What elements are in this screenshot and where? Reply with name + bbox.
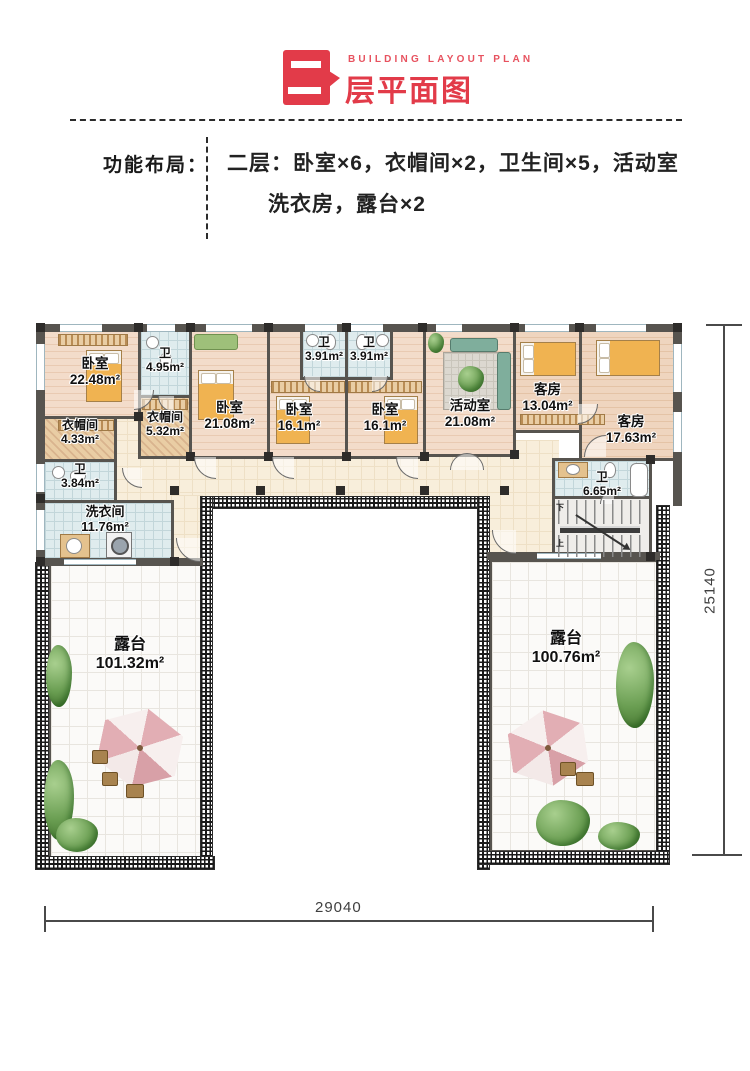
- room-label: 卧室16.1m²: [262, 402, 336, 434]
- floor-two-badge-icon: [283, 50, 330, 105]
- column: [575, 323, 584, 332]
- dimension-tick: [44, 906, 46, 932]
- chair-icon: [126, 784, 144, 798]
- badge-bar: [291, 61, 321, 68]
- shelf-icon: [58, 334, 128, 346]
- badge-bar: [288, 87, 321, 94]
- room-label: 卫3.91m²: [345, 335, 393, 363]
- window: [60, 324, 102, 332]
- floor-plan-page: BUILDING LAYOUT PLAN 层平面图 功能布局： 二层：卧室×6，…: [0, 0, 750, 1071]
- dimension-width-label: 29040: [315, 899, 362, 916]
- room-label: 卫4.95m²: [140, 346, 190, 374]
- summary-line1: 二层：卧室×6，衣帽间×2，卫生间×5，活动室: [227, 147, 679, 177]
- stairs-up-label: 上: [556, 538, 564, 549]
- room-label: 洗衣间11.76m²: [48, 504, 162, 535]
- window: [36, 344, 45, 390]
- window: [673, 344, 682, 392]
- column: [264, 323, 273, 332]
- courtyard-void: [213, 509, 477, 870]
- room-label: 卧室16.1m²: [348, 402, 422, 434]
- room-label: 卫3.84m²: [44, 462, 116, 490]
- column: [673, 323, 682, 332]
- column: [510, 450, 519, 459]
- window: [206, 324, 252, 332]
- column: [342, 323, 351, 332]
- room-label: 卧室21.08m²: [189, 400, 270, 432]
- room-label: 卧室22.48m²: [50, 356, 140, 388]
- chair-icon: [102, 772, 118, 786]
- bed-icon: [596, 340, 660, 376]
- column: [36, 557, 45, 566]
- badge-tail: [329, 71, 340, 87]
- sofa-icon: [450, 338, 498, 352]
- room-label: 客房13.04m²: [513, 382, 582, 414]
- column: [186, 323, 195, 332]
- summary-label: 功能布局：: [103, 150, 208, 177]
- column: [420, 452, 429, 461]
- dimension-tick: [652, 906, 654, 932]
- column: [170, 486, 179, 495]
- column: [134, 323, 143, 332]
- column: [36, 323, 45, 332]
- dimension-width-line: [45, 920, 653, 922]
- window: [36, 510, 45, 550]
- room-label: 卫3.91m²: [300, 335, 348, 363]
- window: [64, 559, 136, 565]
- column: [256, 486, 265, 495]
- summary-line2: 洗衣房，露台×2: [268, 188, 426, 218]
- room-label: 卫6.65m²: [570, 470, 634, 498]
- room-label: 衣帽间4.33m²: [44, 418, 116, 446]
- washer-icon: [106, 532, 132, 558]
- window: [596, 324, 646, 332]
- chair-icon: [92, 750, 108, 764]
- column: [500, 486, 509, 495]
- column: [36, 494, 45, 503]
- column: [420, 486, 429, 495]
- window: [305, 324, 337, 332]
- railing: [477, 851, 670, 865]
- column: [646, 455, 655, 464]
- room-label: 客房17.63m²: [588, 414, 674, 446]
- terrace-right-label: 露台100.76m²: [496, 630, 636, 668]
- window: [147, 324, 175, 332]
- dimension-height-line: [723, 325, 725, 855]
- sink-icon: [66, 538, 82, 554]
- room-label: 活动室21.08m²: [426, 398, 514, 430]
- stairs-icon: [558, 500, 646, 524]
- terrace-left-label: 露台101.32m²: [60, 636, 200, 674]
- column: [170, 557, 179, 566]
- column: [510, 323, 519, 332]
- window: [351, 324, 383, 332]
- bed-icon: [520, 342, 576, 376]
- railing: [200, 496, 213, 870]
- dimension-tick: [692, 854, 742, 856]
- column: [646, 552, 655, 561]
- column: [418, 323, 427, 332]
- dashed-divider: [70, 119, 682, 121]
- railing: [35, 856, 215, 870]
- header-eyebrow: BUILDING LAYOUT PLAN: [348, 54, 533, 65]
- chair-icon: [560, 762, 576, 776]
- window: [436, 324, 462, 332]
- page-title: 层平面图: [345, 66, 473, 110]
- corridor: [487, 440, 559, 566]
- daybed-icon: [194, 334, 238, 350]
- room-label: 衣帽间5.32m²: [138, 410, 192, 438]
- railing: [200, 496, 490, 509]
- window: [525, 324, 569, 332]
- chair-icon: [576, 772, 594, 786]
- window: [673, 412, 682, 452]
- column: [336, 486, 345, 495]
- stairs-down-label: 下: [556, 502, 564, 513]
- dimension-height-label: 25140: [702, 561, 719, 621]
- dimension-tick: [706, 324, 742, 326]
- column: [342, 452, 351, 461]
